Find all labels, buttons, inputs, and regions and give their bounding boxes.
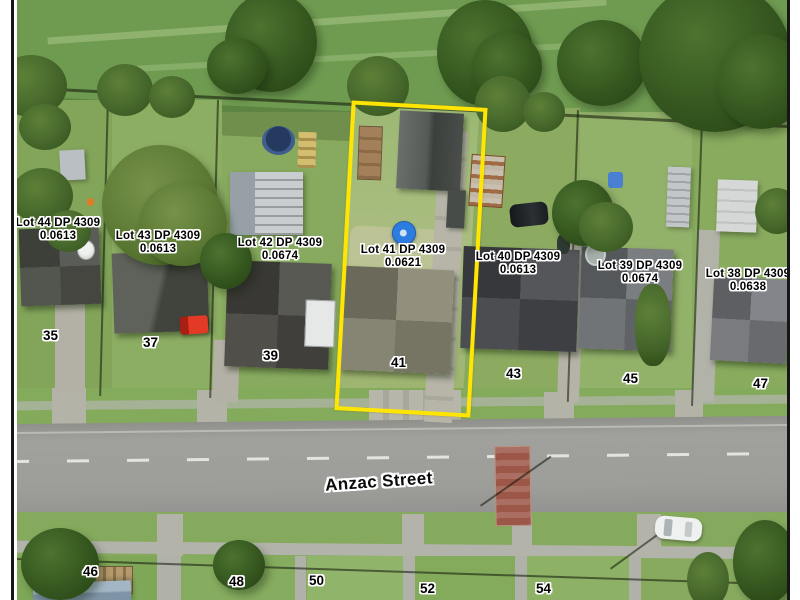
lot-area: 0.0621 (338, 257, 468, 270)
lot-name: Lot 44 DP 4309 (17, 217, 123, 230)
lot-name: Lot 42 DP 4309 (215, 237, 345, 250)
driveway-crossing (157, 514, 183, 556)
play-structure (297, 132, 316, 169)
lot-name: Lot 40 DP 4309 (453, 251, 583, 264)
lot-43-label: Lot 43 DP 4309 0.0613 (93, 230, 223, 255)
house-number-37: 37 (143, 335, 158, 350)
house-number-46: 46 (83, 564, 98, 579)
lot-42-label: Lot 42 DP 4309 0.0674 (215, 237, 345, 262)
hedge (635, 284, 671, 366)
path-between-lots (403, 556, 415, 600)
tree (207, 38, 267, 94)
crossing-texture (495, 447, 530, 526)
lot-area: 0.0638 (683, 281, 787, 294)
car-rear-window (684, 522, 692, 538)
tree (687, 552, 729, 600)
house-number-48: 48 (229, 574, 244, 589)
lot-area: 0.0613 (93, 243, 223, 256)
house-number-35: 35 (43, 328, 58, 343)
aerial-map-page: Lot 44 DP 4309 0.0613 Lot 43 DP 4309 0.0… (0, 0, 800, 600)
tree (97, 64, 153, 116)
tree (733, 520, 787, 600)
lot-38-white-garage (716, 179, 758, 232)
tree (557, 20, 647, 106)
car-windshield (663, 519, 672, 537)
right-frame-line (787, 0, 790, 600)
house-number-43: 43 (506, 366, 521, 381)
lot-40-label: Lot 40 DP 4309 0.0613 (453, 251, 583, 276)
black-suv (509, 201, 549, 228)
lane-marking-dashed (17, 452, 787, 463)
garden-bush (19, 104, 71, 150)
white-car (654, 515, 703, 542)
road-anzac-street (17, 416, 787, 520)
house-number-45: 45 (623, 371, 638, 386)
lot-42-shed (230, 172, 303, 235)
lot-41-label: Lot 41 DP 4309 0.0621 (338, 244, 468, 269)
shed-ridge-texture (255, 172, 303, 235)
house-number-39: 39 (263, 348, 278, 363)
lot-area: 0.0613 (453, 264, 583, 277)
path-between-lots (515, 556, 527, 600)
road-edge-line (17, 424, 787, 434)
tree (149, 76, 195, 118)
lot-38-label: Lot 38 DP 4309 0.0638 (683, 268, 787, 293)
white-caravan (304, 299, 336, 347)
path-between-lots (295, 556, 306, 600)
red-truck (179, 315, 208, 335)
lot-name: Lot 43 DP 4309 (93, 230, 223, 243)
trampoline (262, 126, 295, 155)
lot-name: Lot 41 DP 4309 (338, 244, 468, 257)
driveway-crossing (52, 388, 86, 424)
tree (579, 202, 633, 252)
lot-name: Lot 38 DP 4309 (683, 268, 787, 281)
house-number-41: 41 (391, 355, 406, 370)
map-canvas[interactable]: Lot 44 DP 4309 0.0613 Lot 43 DP 4309 0.0… (17, 0, 787, 600)
lot-44-driveway (55, 300, 85, 392)
lot-38-ribbed-garage (666, 167, 691, 228)
tree (523, 92, 565, 132)
left-frame-line (11, 0, 14, 600)
blue-tarp (608, 172, 623, 188)
lot-area: 0.0674 (215, 250, 345, 263)
house-number-54: 54 (536, 581, 551, 596)
house-number-50: 50 (309, 573, 324, 588)
house-number-52: 52 (420, 581, 435, 596)
house-number-47: 47 (753, 376, 768, 391)
orange-object (87, 198, 94, 206)
driveway-crossing (402, 514, 424, 556)
red-painted-crossing (494, 446, 531, 527)
